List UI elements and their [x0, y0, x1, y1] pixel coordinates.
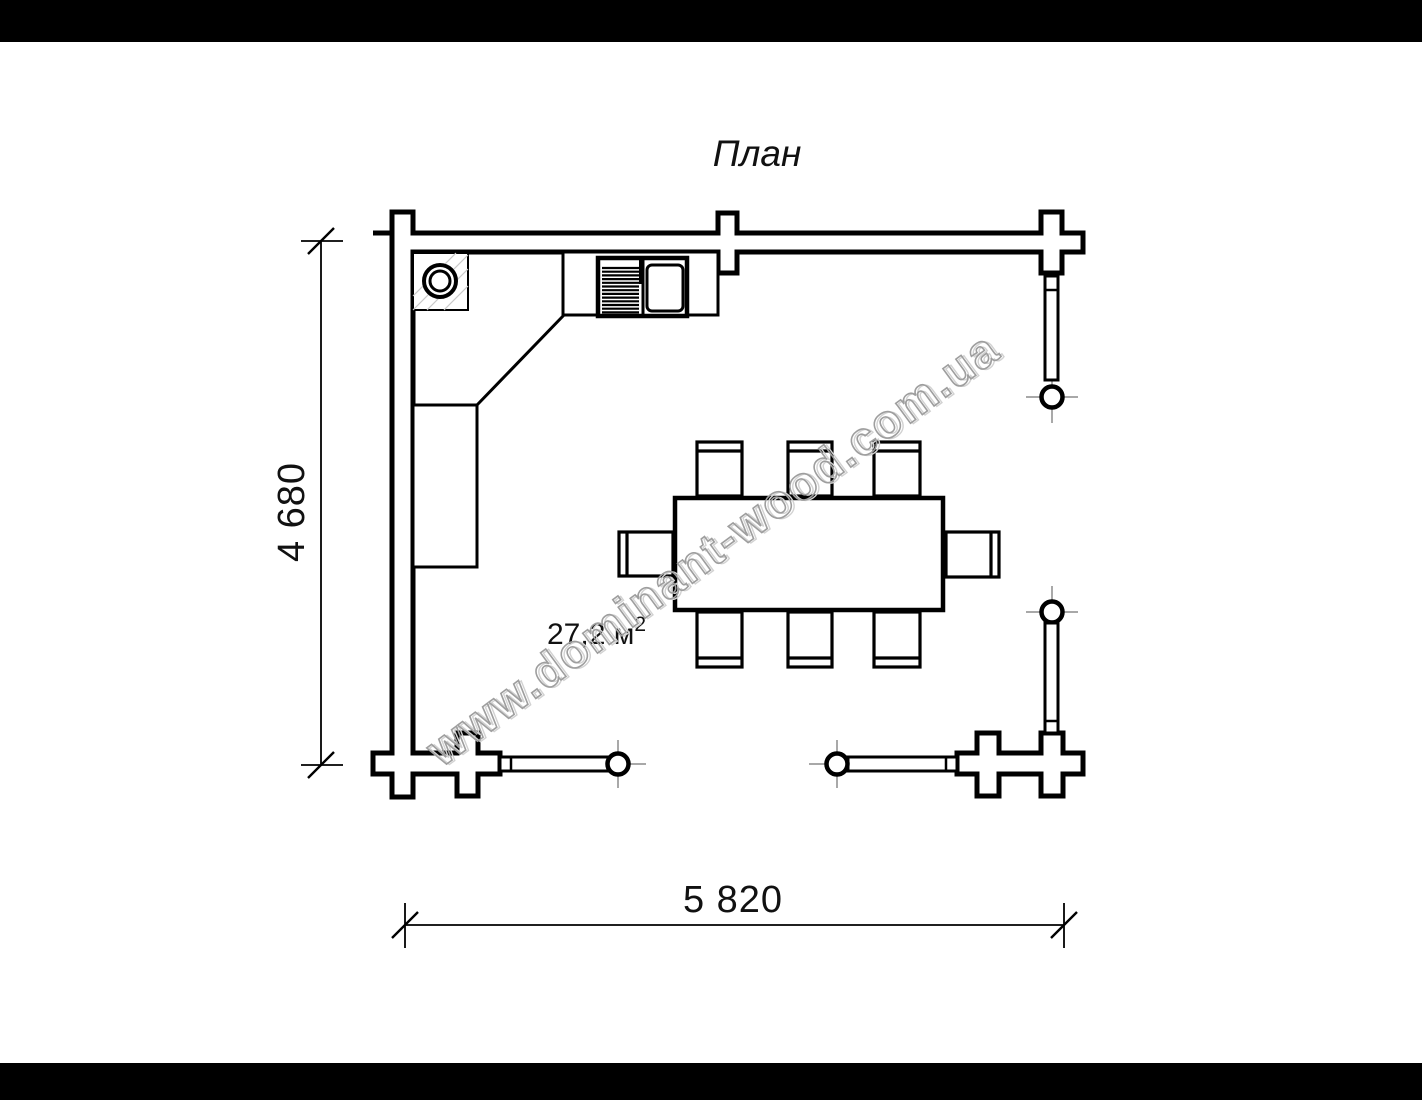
sink-icon [647, 265, 683, 311]
bench-diagonal [477, 315, 564, 405]
dimension-height-label: 4 680 [271, 462, 313, 562]
dimension-width-label: 5 820 [683, 879, 783, 921]
screenshot-root: 4 680 5 820 27,2 м2 План www.dominant-wo… [0, 0, 1422, 1100]
railing-section [500, 757, 608, 771]
corner-bench [413, 315, 564, 567]
faucet-icon [639, 258, 644, 284]
plan-title: План [713, 133, 802, 174]
railing-post [827, 754, 848, 775]
kitchen-counter [563, 252, 718, 316]
railing-section [1045, 623, 1058, 733]
railing-section [848, 757, 957, 771]
cooktop-icon [602, 268, 639, 312]
chair [697, 612, 920, 667]
log-wall-bottom-right [957, 733, 1083, 796]
railing-post [608, 754, 629, 775]
stove-module [413, 253, 468, 310]
floor-plan-drawing: 4 680 5 820 27,2 м2 План www.dominant-wo… [0, 0, 1422, 1100]
railing-post [1042, 387, 1063, 408]
railing-post [1042, 602, 1063, 623]
railing-section [1045, 276, 1058, 380]
bench-seat [413, 405, 477, 567]
